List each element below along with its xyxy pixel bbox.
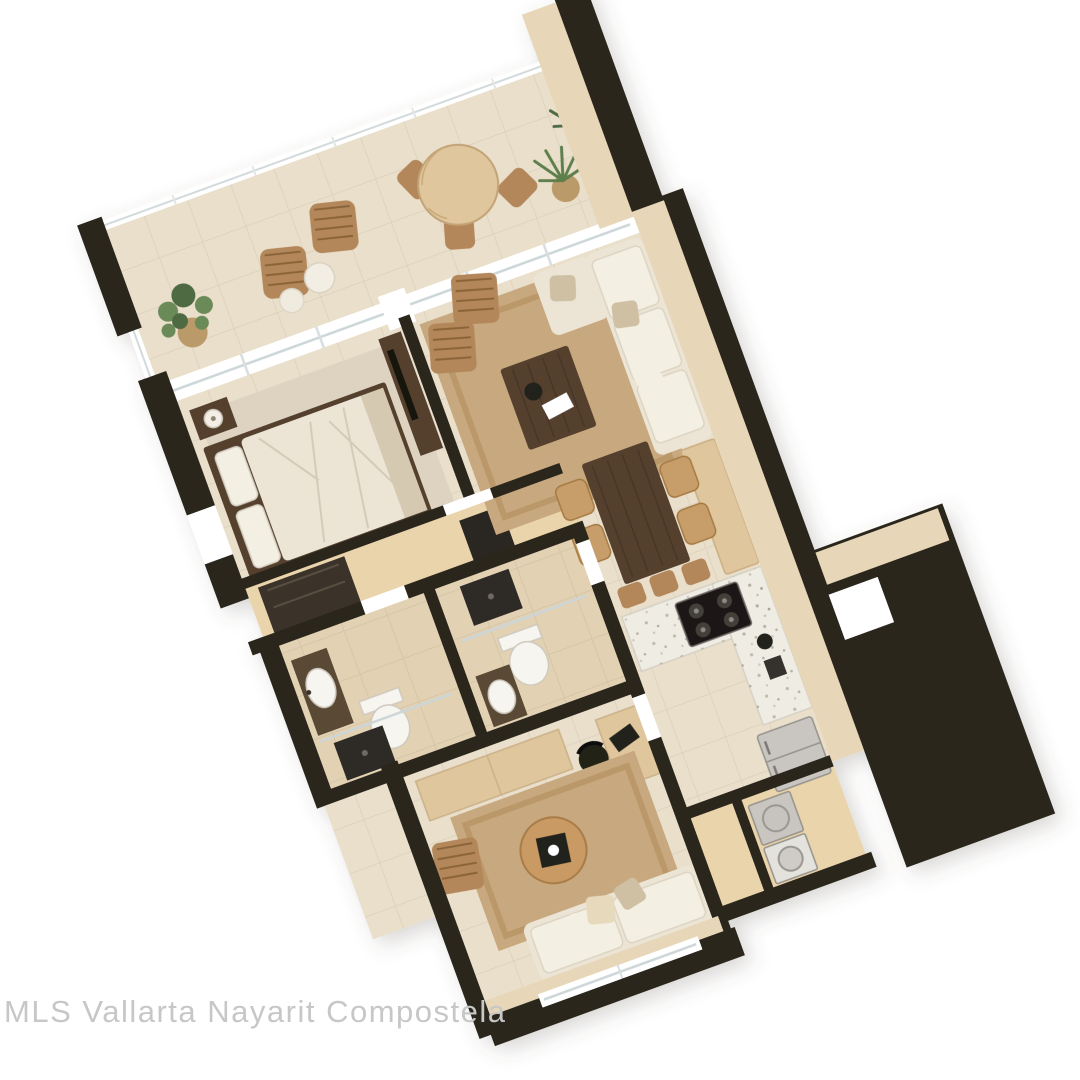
lounge-chair-2: [309, 200, 360, 255]
watermark-text: MLS Vallarta Nayarit Compostela: [4, 994, 507, 1029]
apartment-plan: [59, 0, 1065, 1080]
armchair-2: [450, 272, 499, 325]
floor-plan-render: MLS Vallarta Nayarit Compostela: [0, 0, 1080, 1080]
page: { "watermark": { "text": "MLS Vallarta N…: [0, 0, 1080, 1080]
armchair-1: [428, 321, 477, 374]
